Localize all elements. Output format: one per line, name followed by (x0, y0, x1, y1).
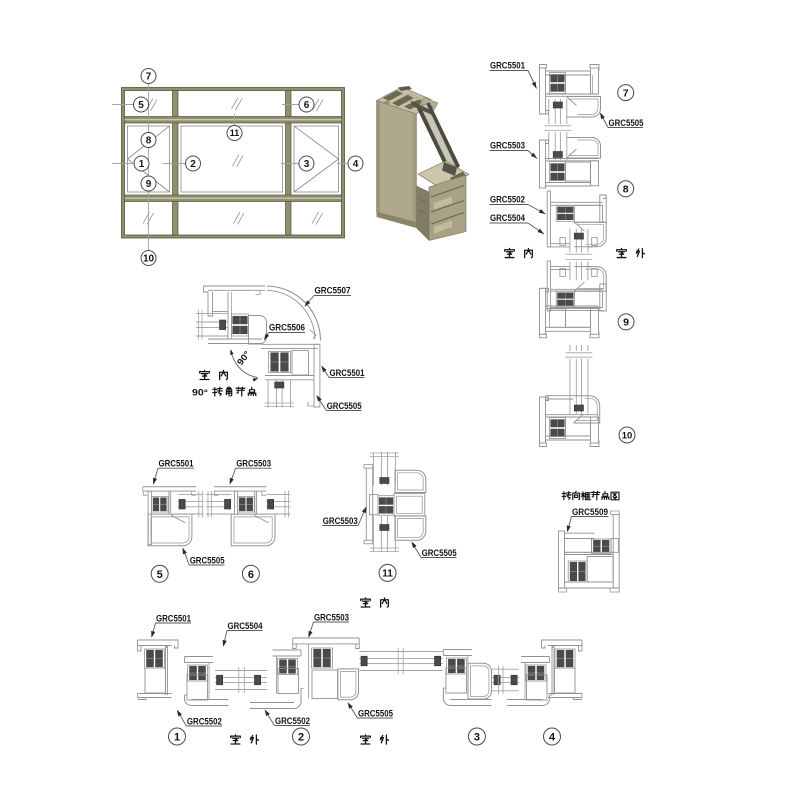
svg-text:11: 11 (230, 128, 240, 138)
svg-text:4: 4 (549, 731, 556, 743)
svg-text:6: 6 (248, 569, 254, 581)
svg-text:7: 7 (623, 87, 629, 99)
svg-text:GRC5502: GRC5502 (490, 195, 525, 206)
svg-text:2: 2 (190, 159, 196, 170)
svg-text:4: 4 (353, 159, 359, 170)
svg-text:6: 6 (304, 100, 310, 111)
svg-text:9: 9 (623, 317, 629, 329)
svg-text:5: 5 (138, 100, 144, 111)
svg-text:GRC5507: GRC5507 (315, 286, 351, 297)
svg-text:10: 10 (622, 430, 633, 441)
svg-text:10: 10 (143, 254, 155, 265)
svg-text:11: 11 (382, 569, 393, 580)
svg-text:GRC5503: GRC5503 (490, 141, 525, 152)
svg-text:2: 2 (298, 731, 304, 743)
svg-text:7: 7 (146, 72, 152, 83)
svg-text:5: 5 (157, 569, 163, 581)
svg-text:1: 1 (139, 159, 145, 170)
svg-text:GRC5504: GRC5504 (490, 213, 526, 224)
svg-text:3: 3 (304, 159, 310, 170)
svg-text:GRC5506: GRC5506 (269, 323, 305, 334)
svg-text:8: 8 (146, 136, 152, 147)
svg-text:3: 3 (474, 731, 480, 743)
svg-text:90°: 90° (192, 388, 208, 399)
svg-text:8: 8 (623, 184, 629, 196)
svg-text:9: 9 (146, 179, 152, 190)
svg-text:GRC5501: GRC5501 (490, 61, 526, 72)
svg-text:1: 1 (174, 731, 180, 743)
